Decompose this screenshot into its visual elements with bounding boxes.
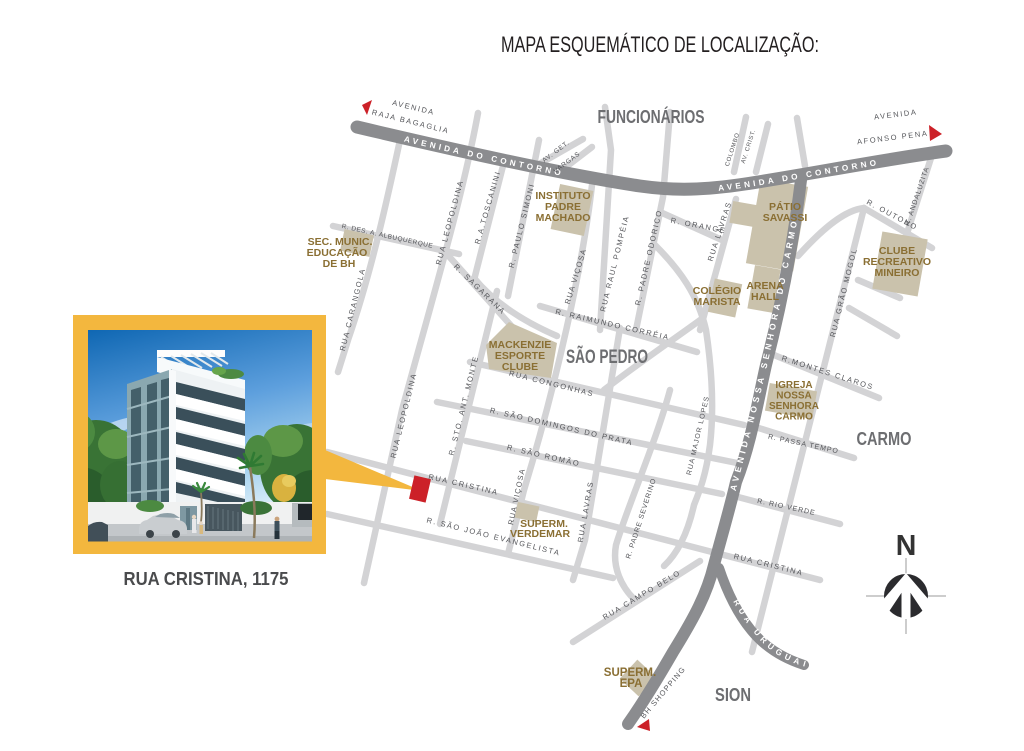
svg-text:R. PADRE ODORICO: R. PADRE ODORICO xyxy=(633,208,664,306)
svg-text:RUA GRÃO MOGOL: RUA GRÃO MOGOL xyxy=(828,247,859,338)
svg-text:FUNCIONÁRIOS: FUNCIONÁRIOS xyxy=(598,106,705,127)
svg-text:MARISTA: MARISTA xyxy=(693,296,740,308)
svg-text:RUA LEOPOLDINA: RUA LEOPOLDINA xyxy=(389,372,419,459)
svg-text:SAVASSI: SAVASSI xyxy=(763,212,808,224)
svg-text:HALL: HALL xyxy=(751,291,780,303)
svg-text:MINEIRO: MINEIRO xyxy=(875,267,920,279)
svg-text:MAPA ESQUEMÁTICO DE LOCALIZAÇÃ: MAPA ESQUEMÁTICO DE LOCALIZAÇÃO: xyxy=(501,32,819,57)
svg-text:CARMO: CARMO xyxy=(775,412,813,423)
svg-text:R. PADRE SEVERINO: R. PADRE SEVERINO xyxy=(625,477,658,559)
svg-text:SÃO PEDRO: SÃO PEDRO xyxy=(566,346,648,368)
svg-text:RUA CARANGOLA: RUA CARANGOLA xyxy=(338,267,367,352)
svg-text:CLUBE: CLUBE xyxy=(502,361,538,373)
svg-text:NOSSA: NOSSA xyxy=(776,391,812,402)
svg-text:CARMO: CARMO xyxy=(857,429,912,449)
svg-text:DE BH: DE BH xyxy=(323,258,356,270)
svg-text:R. ANDALUZITA: R. ANDALUZITA xyxy=(904,166,931,227)
svg-text:R. SÃO ROMÃO: R. SÃO ROMÃO xyxy=(506,443,581,469)
svg-text:IGREJA: IGREJA xyxy=(775,380,812,391)
svg-text:RUA CRISTINA, 1175: RUA CRISTINA, 1175 xyxy=(124,569,289,589)
svg-text:RUA URUGUAI: RUA URUGUAI xyxy=(731,598,810,670)
svg-text:MACHADO: MACHADO xyxy=(536,212,591,224)
svg-text:SENHORA: SENHORA xyxy=(769,401,819,412)
svg-text:AFONSO PENA: AFONSO PENA xyxy=(857,129,929,147)
svg-text:EPA: EPA xyxy=(620,678,643,690)
svg-text:RUA CRISTINA: RUA CRISTINA xyxy=(428,472,500,497)
svg-text:R. PAULO SIMONI: R. PAULO SIMONI xyxy=(507,182,537,269)
svg-text:SION: SION xyxy=(715,685,751,705)
svg-text:N: N xyxy=(896,530,917,562)
svg-text:VERDEMAR: VERDEMAR xyxy=(510,528,571,540)
svg-text:R. RAIMUNDO CORRÉIA: R. RAIMUNDO CORRÉIA xyxy=(555,307,671,342)
svg-text:AVENIDA: AVENIDA xyxy=(874,107,918,121)
svg-text:R. SÃO DOMINGOS DO PRATA: R. SÃO DOMINGOS DO PRATA xyxy=(489,406,634,448)
